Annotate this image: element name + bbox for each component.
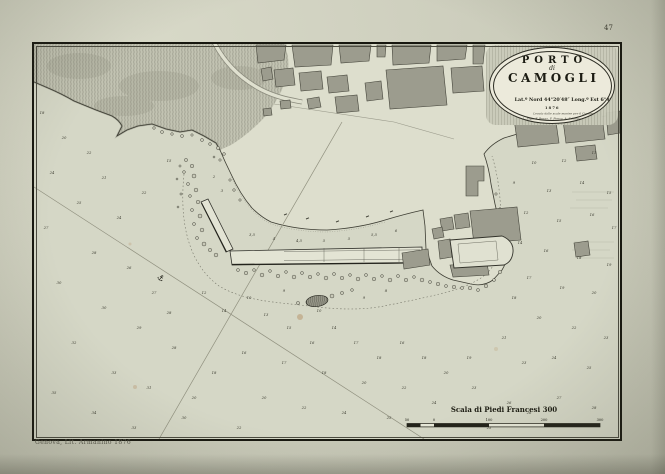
svg-text:14: 14 xyxy=(332,325,337,330)
svg-text:19: 19 xyxy=(607,262,612,267)
svg-text:28: 28 xyxy=(166,310,172,315)
svg-text:22: 22 xyxy=(236,425,242,430)
svg-text:16: 16 xyxy=(310,340,315,345)
svg-text:21: 21 xyxy=(501,335,507,340)
svg-text:10: 10 xyxy=(317,308,322,313)
svg-text:100: 100 xyxy=(486,418,494,422)
svg-text:23: 23 xyxy=(471,385,477,390)
svg-text:17: 17 xyxy=(282,360,287,365)
chart-title-camogli: CAMOGLI xyxy=(490,72,614,86)
svg-text:20: 20 xyxy=(261,395,267,400)
svg-text:30: 30 xyxy=(182,415,187,420)
svg-text:23: 23 xyxy=(603,335,609,340)
svg-text:14: 14 xyxy=(580,180,585,185)
scale-title: Scala di Piedi Francesi 300 xyxy=(451,405,557,414)
chart-coordinates: Lat.º Nord 44°20′48″ Long.º Est 6°49′5″ xyxy=(515,96,615,102)
svg-text:25: 25 xyxy=(386,415,392,420)
svg-text:18: 18 xyxy=(322,370,327,375)
svg-text:12: 12 xyxy=(202,290,207,295)
svg-text:19: 19 xyxy=(467,355,472,360)
title-cartouche: PORTO di CAMOGLI Lat.º Nord 44°20′48″ Lo… xyxy=(486,45,618,125)
svg-text:18: 18 xyxy=(577,255,582,260)
svg-text:12: 12 xyxy=(562,158,567,163)
svg-text:5,5: 5,5 xyxy=(371,232,378,237)
svg-text:20: 20 xyxy=(61,135,67,140)
chart-credit-line1: Levata dalle scale marine per il Comune … xyxy=(533,112,615,116)
lithographer-imprint: Genova, Lit. Armanino 1876 xyxy=(35,439,131,446)
svg-text:24: 24 xyxy=(551,355,557,360)
svg-text:20: 20 xyxy=(443,370,449,375)
chart-year: 1876 xyxy=(545,106,560,110)
svg-text:14: 14 xyxy=(518,240,523,245)
svg-text:27: 27 xyxy=(556,395,562,400)
svg-text:18: 18 xyxy=(377,355,382,360)
svg-text:300: 300 xyxy=(597,418,605,422)
svg-text:33: 33 xyxy=(132,425,137,430)
svg-text:20: 20 xyxy=(591,290,597,295)
svg-text:27: 27 xyxy=(43,225,49,230)
svg-text:22: 22 xyxy=(401,385,407,390)
svg-text:18: 18 xyxy=(212,370,217,375)
svg-text:31: 31 xyxy=(147,385,152,390)
svg-text:24: 24 xyxy=(431,400,437,405)
page-number: 47 xyxy=(604,24,613,32)
cartouche-oval: PORTO di CAMOGLI Lat.º Nord 44°20′48″ Lo… xyxy=(489,47,615,124)
svg-text:24: 24 xyxy=(116,215,122,220)
svg-text:22: 22 xyxy=(86,150,92,155)
svg-text:4,5: 4,5 xyxy=(295,238,303,243)
svg-text:4: 4 xyxy=(272,236,276,241)
svg-text:13: 13 xyxy=(264,312,269,317)
svg-text:15: 15 xyxy=(607,190,612,195)
svg-text:24: 24 xyxy=(49,170,55,175)
castle-compound xyxy=(450,236,513,268)
svg-text:10: 10 xyxy=(532,160,537,165)
svg-text:10: 10 xyxy=(247,295,252,300)
svg-text:22: 22 xyxy=(141,190,147,195)
svg-text:21: 21 xyxy=(101,175,107,180)
svg-text:25: 25 xyxy=(76,200,82,205)
svg-text:2: 2 xyxy=(212,174,216,179)
svg-text:20: 20 xyxy=(536,315,542,320)
svg-text:17: 17 xyxy=(354,340,359,345)
svg-text:200: 200 xyxy=(541,418,549,422)
svg-text:19: 19 xyxy=(560,285,565,290)
svg-text:25: 25 xyxy=(586,365,592,370)
svg-text:18: 18 xyxy=(512,295,517,300)
svg-text:17: 17 xyxy=(527,275,532,280)
svg-text:20: 20 xyxy=(191,395,197,400)
svg-text:12: 12 xyxy=(524,210,529,215)
svg-text:22: 22 xyxy=(301,405,307,410)
svg-text:26: 26 xyxy=(126,265,132,270)
svg-text:16: 16 xyxy=(590,212,595,217)
svg-text:11: 11 xyxy=(592,150,597,155)
svg-text:30: 30 xyxy=(102,305,107,310)
svg-text:28: 28 xyxy=(591,405,597,410)
chart-credit-line2: L. Siga, F. Braga, F. Ponca, A. Schiavo xyxy=(523,117,581,121)
svg-text:15: 15 xyxy=(167,158,172,163)
svg-text:32: 32 xyxy=(72,340,77,345)
svg-text:14: 14 xyxy=(222,308,227,313)
svg-text:30: 30 xyxy=(57,280,62,285)
svg-text:16: 16 xyxy=(544,248,549,253)
svg-text:16: 16 xyxy=(242,350,247,355)
svg-text:17: 17 xyxy=(612,225,617,230)
svg-text:35: 35 xyxy=(52,390,57,395)
map-frame: 1820222421252724221528263027302932283335… xyxy=(32,42,622,441)
svg-text:22: 22 xyxy=(571,325,577,330)
svg-text:3,5: 3,5 xyxy=(249,232,256,237)
svg-text:15: 15 xyxy=(287,325,292,330)
svg-text:33: 33 xyxy=(112,370,117,375)
svg-text:15: 15 xyxy=(557,218,562,223)
svg-text:29: 29 xyxy=(136,325,142,330)
svg-text:27: 27 xyxy=(151,290,157,295)
svg-text:24: 24 xyxy=(341,410,347,415)
svg-text:34: 34 xyxy=(92,410,97,415)
svg-text:16: 16 xyxy=(400,340,405,345)
svg-text:23: 23 xyxy=(521,360,527,365)
svg-text:13: 13 xyxy=(547,188,552,193)
svg-text:50: 50 xyxy=(405,418,410,422)
svg-text:18: 18 xyxy=(40,110,45,115)
svg-text:28: 28 xyxy=(91,250,97,255)
svg-text:18: 18 xyxy=(422,355,427,360)
svg-text:20: 20 xyxy=(361,380,367,385)
svg-text:28: 28 xyxy=(171,345,177,350)
